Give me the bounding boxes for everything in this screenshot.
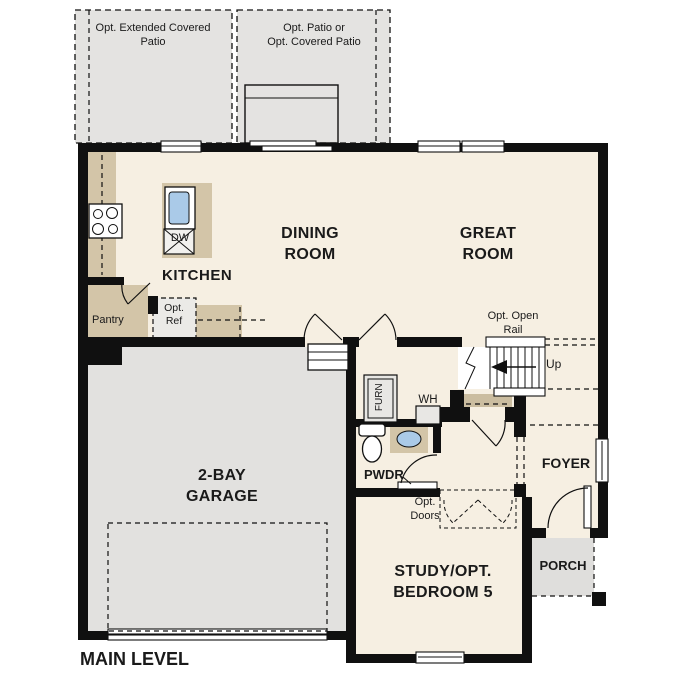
garage-label: 2-BAY GARAGE: [170, 466, 274, 508]
dishwasher-label: DW: [166, 232, 194, 246]
stair-railing-lower: [494, 388, 545, 396]
floor-plan-drawing: [0, 0, 687, 687]
front-door-leaf: [584, 486, 591, 528]
toilet-bowl: [363, 436, 382, 462]
floor-plan: Opt. Extended Covered Patio Opt. Patio o…: [0, 0, 687, 687]
opt-doors-label: Opt. Doors: [402, 496, 448, 524]
powder-door-leaf: [398, 482, 437, 489]
study-label: STUDY/OPT. BEDROOM 5: [381, 562, 505, 604]
porch-label: PORCH: [531, 558, 595, 574]
water-heater: [416, 406, 440, 424]
sliding-door-panel-1: [250, 141, 316, 146]
kitchen-counter-lower: [196, 305, 242, 340]
opt-ref-label: Opt. Ref: [153, 302, 195, 328]
opt-open-rail-label: Opt. Open Rail: [477, 310, 549, 338]
patio-right-label: Opt. Patio or Opt. Covered Patio: [250, 22, 378, 50]
plan-title: MAIN LEVEL: [80, 648, 189, 671]
kitchen-sink: [169, 192, 189, 224]
vanity-sink: [397, 431, 421, 447]
toilet-tank: [359, 424, 385, 436]
garage-corner-pier: [88, 345, 122, 365]
stair-railing: [486, 337, 545, 347]
great-room-label: GREAT ROOM: [446, 224, 530, 266]
water-heater-label: WH: [415, 393, 441, 407]
sliding-door-panel-2: [262, 146, 332, 151]
dining-room-label: DINING ROOM: [268, 224, 352, 266]
garage-entry-steps: [308, 344, 348, 370]
pantry-label: Pantry: [92, 314, 124, 328]
foyer-label: FOYER: [534, 455, 598, 473]
kitchen-label: KITCHEN: [162, 267, 232, 286]
powder-room-label: PWDR: [364, 467, 404, 483]
garage-door-panel-2: [108, 635, 327, 640]
patio-left-label: Opt. Extended Covered Patio: [78, 22, 228, 50]
up-label: Up: [546, 357, 561, 372]
furnace-label: FURN: [374, 372, 387, 422]
